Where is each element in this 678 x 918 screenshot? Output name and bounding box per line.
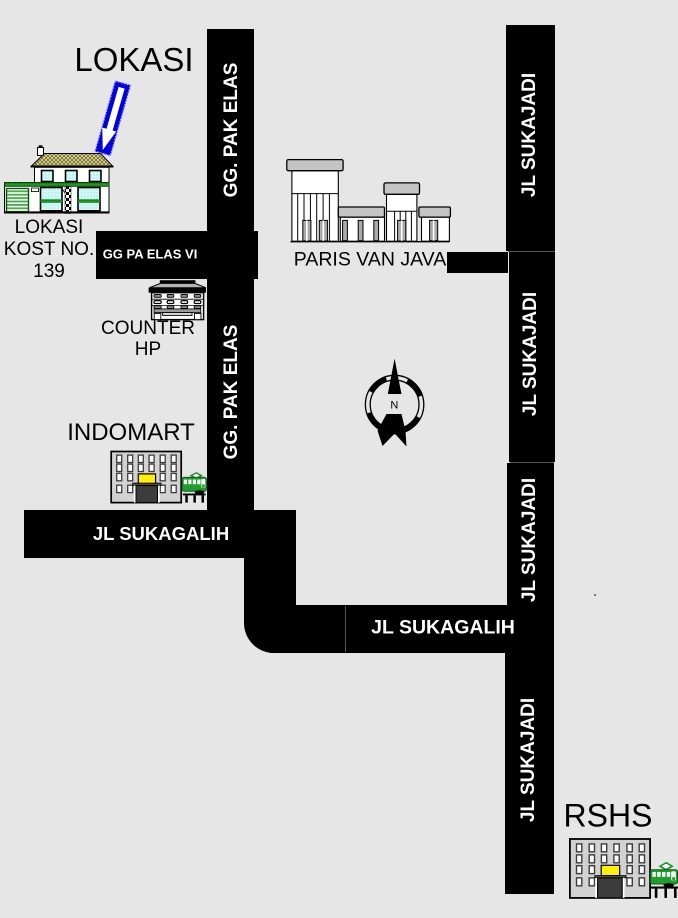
svg-text:N: N [390, 400, 398, 412]
